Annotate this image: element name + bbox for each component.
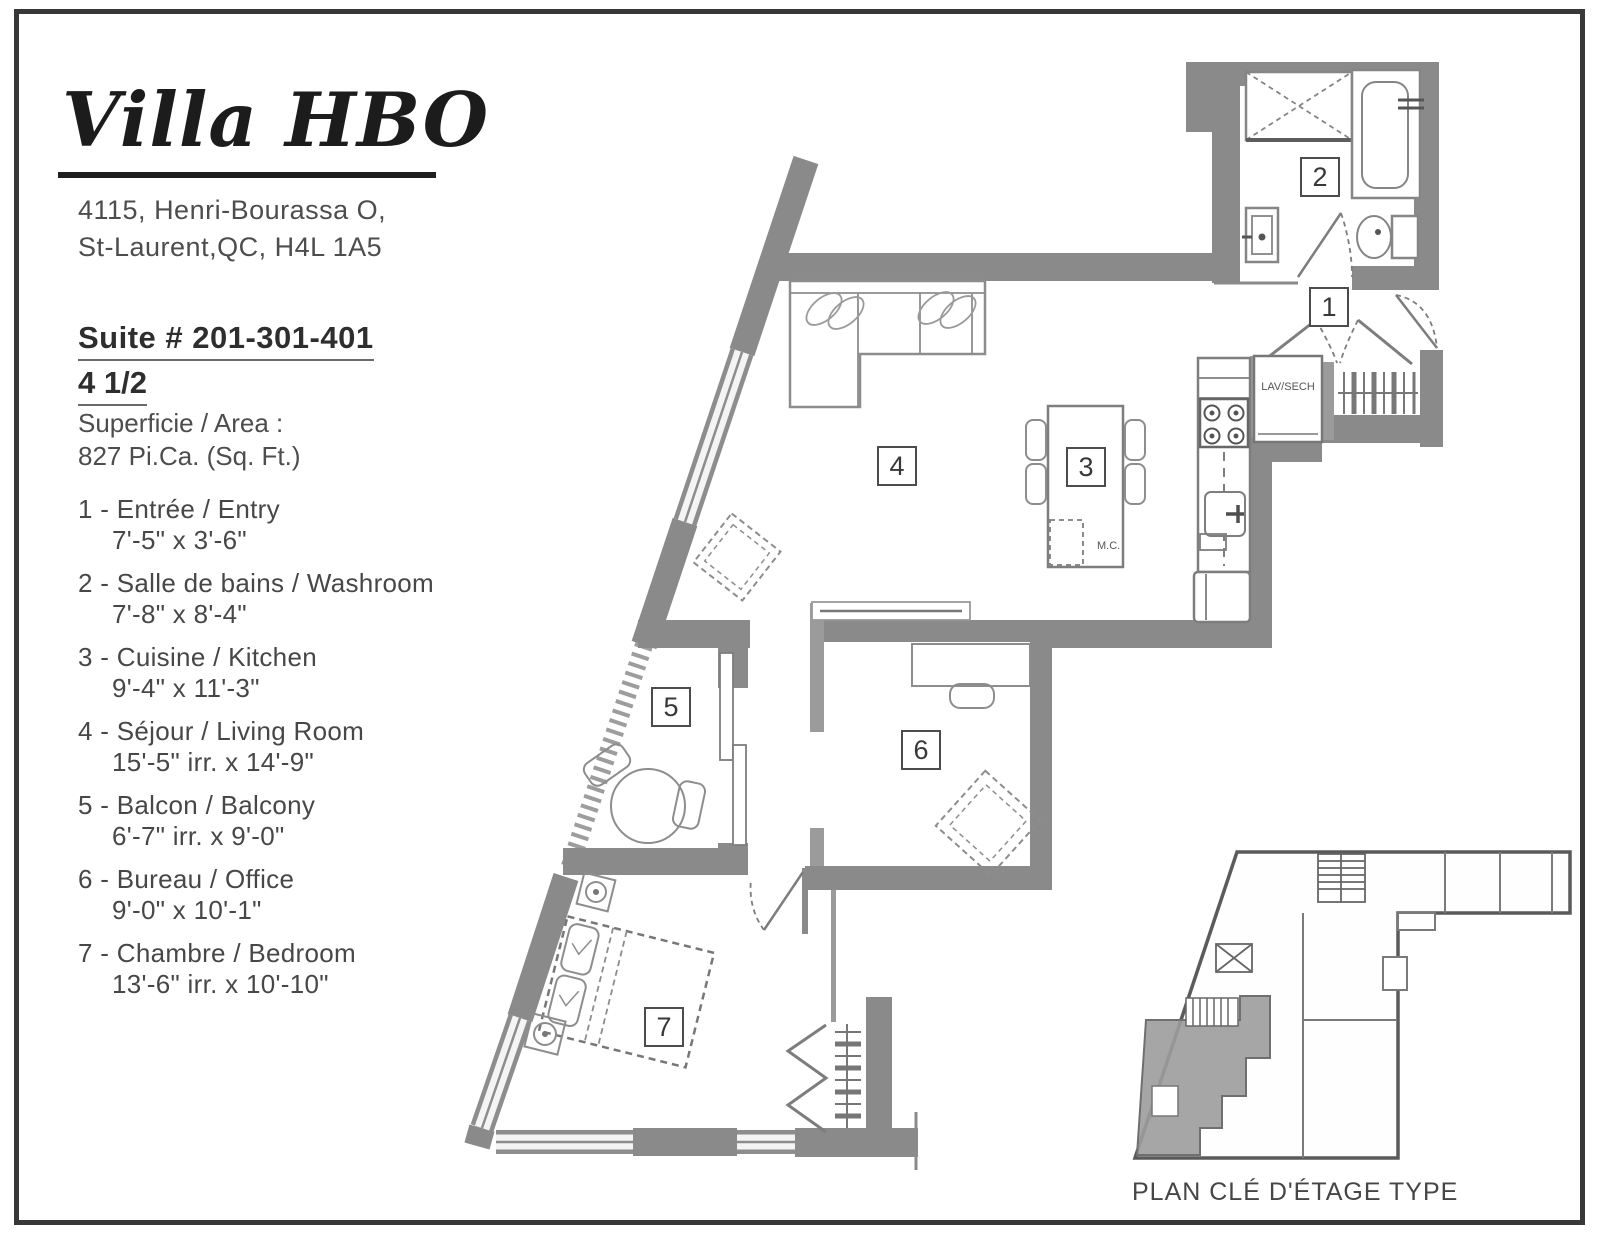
living-accent-chair <box>693 513 780 600</box>
room-marker-living: 4 <box>878 447 916 485</box>
office-top-wall <box>824 620 1030 642</box>
console-table <box>812 602 970 620</box>
bedroom-closet-left-wall <box>831 890 836 1022</box>
room-marker-office: 6 <box>902 731 940 769</box>
washroom-left-wall <box>1212 62 1240 283</box>
nightstand-upper <box>577 873 616 912</box>
kitchen-fixtures: M.C. <box>1026 358 1250 622</box>
balcony-bottom-wall <box>563 848 748 875</box>
kitchen-sink <box>1205 492 1245 536</box>
entry-coat-closet <box>1338 372 1418 414</box>
key-plan-stairs-top <box>1318 854 1365 902</box>
entry-bottom-wall <box>1322 415 1443 443</box>
room-marker-number: 4 <box>889 451 904 481</box>
room-marker-washroom: 2 <box>1301 158 1339 196</box>
bedroom-hall-wall <box>805 866 1052 890</box>
room-marker-number: 2 <box>1312 162 1327 192</box>
washroom-door <box>1298 213 1352 277</box>
bathroom-sink <box>1242 208 1278 262</box>
bathtub <box>1352 70 1424 198</box>
key-plan-notch <box>1152 1086 1178 1116</box>
key-plan-stairs-lower <box>1186 998 1238 1026</box>
room-marker-bedroom: 7 <box>645 1008 683 1046</box>
room-marker-number: 3 <box>1078 452 1093 482</box>
bedroom-door-post <box>802 868 808 934</box>
balcony-top-wall <box>638 620 750 648</box>
bedroom-door <box>751 872 803 930</box>
room-marker-entry: 1 <box>1310 288 1348 326</box>
office-left-stub-upper <box>810 603 824 732</box>
room-marker-number: 1 <box>1321 292 1336 322</box>
office-left-stub-lower <box>810 828 824 868</box>
bed <box>539 916 714 1067</box>
laundry-label: LAV/SECH <box>1261 381 1315 393</box>
floor-plan-drawing: LAV/SECH <box>0 0 1600 1237</box>
room-marker-number: 6 <box>913 735 928 765</box>
washroom-step-wall <box>1186 62 1214 132</box>
office-accent-chair <box>936 771 1041 876</box>
bedroom-closet-right-wall <box>866 997 892 1132</box>
office-desk <box>912 644 1030 686</box>
microwave-label: M.C. <box>1097 540 1120 552</box>
office-right-wall <box>1030 642 1052 890</box>
kitchen-right-wall <box>1250 437 1272 648</box>
washroom-bottom-wall <box>1352 266 1439 290</box>
bedroom-bottom-wall-right <box>795 1128 918 1157</box>
kitchen-counter <box>1198 358 1250 572</box>
toilet <box>1357 216 1418 258</box>
room-marker-kitchen: 3 <box>1067 448 1105 486</box>
shower <box>1246 72 1352 140</box>
laundry-closet: LAV/SECH <box>1254 356 1322 442</box>
diagonal-window-upper <box>685 352 742 522</box>
key-plan <box>1135 852 1570 1158</box>
room-marker-number: 7 <box>656 1012 671 1042</box>
room-marker-number: 5 <box>663 692 678 722</box>
balcony-table <box>611 769 685 843</box>
room-marker-balcony: 5 <box>652 688 690 726</box>
kitchen-bottom-wall <box>1030 620 1272 648</box>
key-plan-elevator <box>1216 944 1252 972</box>
bedroom-closet-bifold-doors <box>788 1025 826 1132</box>
sectional-sofa <box>790 281 985 407</box>
diagonal-wall-tip <box>477 1128 482 1146</box>
suite-entrance-door <box>1396 295 1437 348</box>
refrigerator <box>1194 572 1250 622</box>
stove <box>1200 399 1248 447</box>
bedroom-bottom-wall-mid <box>633 1128 737 1156</box>
diagonal-window-lower <box>482 1018 520 1128</box>
bedroom-closet-hangers <box>835 1024 861 1128</box>
living-top-wall <box>768 253 1214 281</box>
key-plan-caption: PLAN CLÉ D'ÉTAGE TYPE <box>1132 1178 1458 1207</box>
office-desk-chair <box>950 684 994 708</box>
